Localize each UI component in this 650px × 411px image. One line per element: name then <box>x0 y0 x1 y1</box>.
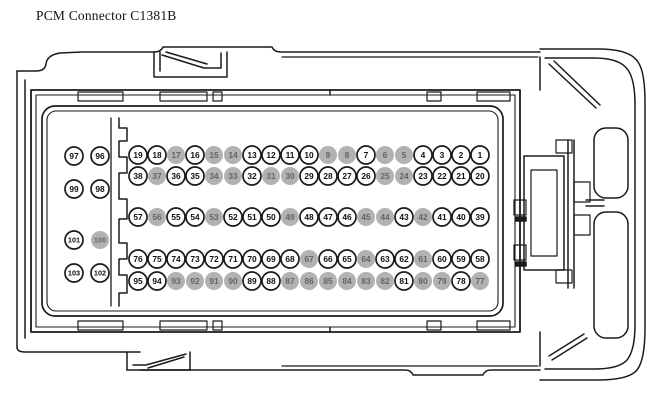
pin-71: 71 <box>224 250 242 268</box>
comb-divider <box>111 118 127 306</box>
svg-text:12: 12 <box>266 150 276 160</box>
pin-72: 72 <box>205 250 223 268</box>
pin-94: 94 <box>148 272 166 290</box>
pin-62: 62 <box>395 250 413 268</box>
pin-86: 86 <box>300 272 318 290</box>
pin-46: 46 <box>338 208 356 226</box>
pin-32: 32 <box>243 167 261 185</box>
svg-text:83: 83 <box>361 276 371 286</box>
pin-15: 15 <box>205 146 223 164</box>
pin-3: 3 <box>433 146 451 164</box>
pin-28: 28 <box>319 167 337 185</box>
pin-11: 11 <box>281 146 299 164</box>
svg-text:3: 3 <box>440 150 445 160</box>
svg-text:84: 84 <box>342 276 352 286</box>
pin-102: 102 <box>91 264 109 282</box>
pin-74: 74 <box>167 250 185 268</box>
svg-text:68: 68 <box>285 254 295 264</box>
svg-text:55: 55 <box>171 212 181 222</box>
pin-45: 45 <box>357 208 375 226</box>
svg-text:88: 88 <box>266 276 276 286</box>
pin-41: 41 <box>433 208 451 226</box>
pin-25: 25 <box>376 167 394 185</box>
pin-84: 84 <box>338 272 356 290</box>
svg-text:6: 6 <box>383 150 388 160</box>
svg-text:47: 47 <box>323 212 333 222</box>
pin-21: 21 <box>452 167 470 185</box>
pin-42: 42 <box>414 208 432 226</box>
pin-77: 77 <box>471 272 489 290</box>
svg-text:43: 43 <box>399 212 409 222</box>
pin-50: 50 <box>262 208 280 226</box>
pin-6: 6 <box>376 146 394 164</box>
pin-53: 53 <box>205 208 223 226</box>
connector-drawing: 1918171615141312111098765432138373635343… <box>0 0 650 411</box>
svg-text:38: 38 <box>133 171 143 181</box>
svg-text:1: 1 <box>478 150 483 160</box>
pin-29: 29 <box>300 167 318 185</box>
pin-85: 85 <box>319 272 337 290</box>
pin-65: 65 <box>338 250 356 268</box>
svg-text:45: 45 <box>361 212 371 222</box>
pin-13: 13 <box>243 146 261 164</box>
pin-40: 40 <box>452 208 470 226</box>
pin-27: 27 <box>338 167 356 185</box>
svg-text:41: 41 <box>437 212 447 222</box>
svg-text:13: 13 <box>247 150 257 160</box>
pin-88: 88 <box>262 272 280 290</box>
pin-55: 55 <box>167 208 185 226</box>
svg-text:29: 29 <box>304 171 314 181</box>
pin-69: 69 <box>262 250 280 268</box>
pin-78: 78 <box>452 272 470 290</box>
svg-text:48: 48 <box>304 212 314 222</box>
pin-101: 101 <box>65 231 83 249</box>
svg-text:103: 103 <box>68 269 80 278</box>
pin-1: 1 <box>471 146 489 164</box>
pin-35: 35 <box>186 167 204 185</box>
pin-51: 51 <box>243 208 261 226</box>
svg-text:101: 101 <box>68 236 80 245</box>
svg-text:9: 9 <box>326 150 331 160</box>
svg-text:65: 65 <box>342 254 352 264</box>
pin-92: 92 <box>186 272 204 290</box>
pin-76: 76 <box>129 250 147 268</box>
svg-text:22: 22 <box>437 171 447 181</box>
pin-26: 26 <box>357 167 375 185</box>
pin-10: 10 <box>300 146 318 164</box>
svg-text:50: 50 <box>266 212 276 222</box>
svg-text:7: 7 <box>364 150 369 160</box>
pin-93: 93 <box>167 272 185 290</box>
pin-31: 31 <box>262 167 280 185</box>
pin-23: 23 <box>414 167 432 185</box>
pin-61: 61 <box>414 250 432 268</box>
svg-text:4: 4 <box>421 150 426 160</box>
svg-text:80: 80 <box>418 276 428 286</box>
svg-text:56: 56 <box>152 212 162 222</box>
pin-44: 44 <box>376 208 394 226</box>
svg-text:21: 21 <box>456 171 466 181</box>
svg-text:77: 77 <box>475 276 485 286</box>
pin-49: 49 <box>281 208 299 226</box>
svg-text:87: 87 <box>285 276 295 286</box>
svg-text:49: 49 <box>285 212 295 222</box>
pin-2: 2 <box>452 146 470 164</box>
pin-grid: 1918171615141312111098765432138373635343… <box>65 146 489 290</box>
svg-text:46: 46 <box>342 212 352 222</box>
pin-87: 87 <box>281 272 299 290</box>
svg-text:14: 14 <box>228 150 238 160</box>
svg-text:73: 73 <box>190 254 200 264</box>
svg-text:95: 95 <box>133 276 143 286</box>
pin-48: 48 <box>300 208 318 226</box>
connector-diagram: 1918171615141312111098765432138373635343… <box>0 0 650 411</box>
pin-103: 103 <box>65 264 83 282</box>
pin-75: 75 <box>148 250 166 268</box>
svg-text:8: 8 <box>345 150 350 160</box>
pin-43: 43 <box>395 208 413 226</box>
pin-57: 57 <box>129 208 147 226</box>
svg-text:35: 35 <box>190 171 200 181</box>
svg-text:63: 63 <box>380 254 390 264</box>
svg-text:20: 20 <box>475 171 485 181</box>
svg-text:86: 86 <box>304 276 314 286</box>
pin-67: 67 <box>300 250 318 268</box>
svg-text:57: 57 <box>133 212 143 222</box>
svg-text:54: 54 <box>190 212 200 222</box>
svg-text:74: 74 <box>171 254 181 264</box>
pin-56: 56 <box>148 208 166 226</box>
svg-text:15: 15 <box>209 150 219 160</box>
svg-text:42: 42 <box>418 212 428 222</box>
svg-text:11: 11 <box>286 150 295 160</box>
pin-24: 24 <box>395 167 413 185</box>
svg-text:102: 102 <box>94 269 106 278</box>
pin-91: 91 <box>205 272 223 290</box>
svg-text:67: 67 <box>304 254 314 264</box>
pin-54: 54 <box>186 208 204 226</box>
svg-text:98: 98 <box>95 184 105 194</box>
svg-text:96: 96 <box>95 151 105 161</box>
pin-68: 68 <box>281 250 299 268</box>
pin-8: 8 <box>338 146 356 164</box>
svg-text:10: 10 <box>304 150 314 160</box>
svg-text:61: 61 <box>418 254 428 264</box>
svg-text:76: 76 <box>133 254 143 264</box>
pin-83: 83 <box>357 272 375 290</box>
pin-89: 89 <box>243 272 261 290</box>
svg-text:19: 19 <box>133 150 143 160</box>
pin-80: 80 <box>414 272 432 290</box>
pin-19: 19 <box>129 146 147 164</box>
svg-text:72: 72 <box>209 254 219 264</box>
pin-9: 9 <box>319 146 337 164</box>
pin-14: 14 <box>224 146 242 164</box>
pin-98: 98 <box>91 180 109 198</box>
pin-30: 30 <box>281 167 299 185</box>
pin-52: 52 <box>224 208 242 226</box>
svg-text:97: 97 <box>69 151 79 161</box>
svg-text:40: 40 <box>456 212 466 222</box>
pin-16: 16 <box>186 146 204 164</box>
pin-81: 81 <box>395 272 413 290</box>
pin-100: 100 <box>91 231 109 249</box>
svg-text:39: 39 <box>475 212 485 222</box>
svg-text:92: 92 <box>190 276 200 286</box>
pin-73: 73 <box>186 250 204 268</box>
pin-60: 60 <box>433 250 451 268</box>
svg-text:60: 60 <box>437 254 447 264</box>
pin-96: 96 <box>91 147 109 165</box>
svg-text:75: 75 <box>152 254 162 264</box>
svg-text:99: 99 <box>69 184 79 194</box>
pin-18: 18 <box>148 146 166 164</box>
pin-12: 12 <box>262 146 280 164</box>
pin-97: 97 <box>65 147 83 165</box>
pin-33: 33 <box>224 167 242 185</box>
pin-58: 58 <box>471 250 489 268</box>
pin-70: 70 <box>243 250 261 268</box>
svg-text:79: 79 <box>437 276 447 286</box>
pin-7: 7 <box>357 146 375 164</box>
svg-text:16: 16 <box>190 150 200 160</box>
pin-79: 79 <box>433 272 451 290</box>
svg-text:28: 28 <box>323 171 333 181</box>
pin-5: 5 <box>395 146 413 164</box>
pin-47: 47 <box>319 208 337 226</box>
pin-20: 20 <box>471 167 489 185</box>
svg-text:81: 81 <box>399 276 409 286</box>
top-edge <box>17 47 540 90</box>
svg-text:2: 2 <box>459 150 464 160</box>
pin-22: 22 <box>433 167 451 185</box>
svg-text:59: 59 <box>456 254 466 264</box>
pin-34: 34 <box>205 167 223 185</box>
svg-text:52: 52 <box>228 212 238 222</box>
pin-90: 90 <box>224 272 242 290</box>
pin-38: 38 <box>129 167 147 185</box>
svg-text:82: 82 <box>380 276 390 286</box>
svg-text:93: 93 <box>171 276 181 286</box>
svg-text:62: 62 <box>399 254 409 264</box>
pin-95: 95 <box>129 272 147 290</box>
left-edge <box>17 71 25 347</box>
svg-text:64: 64 <box>361 254 371 264</box>
svg-text:25: 25 <box>380 171 390 181</box>
pin-4: 4 <box>414 146 432 164</box>
svg-text:58: 58 <box>475 254 485 264</box>
svg-text:26: 26 <box>361 171 371 181</box>
svg-text:23: 23 <box>418 171 428 181</box>
svg-text:30: 30 <box>285 171 295 181</box>
svg-text:44: 44 <box>380 212 390 222</box>
svg-text:24: 24 <box>399 171 409 181</box>
svg-text:53: 53 <box>209 212 219 222</box>
svg-text:31: 31 <box>266 171 276 181</box>
latch-assembly <box>514 140 590 288</box>
svg-text:32: 32 <box>247 171 257 181</box>
svg-text:69: 69 <box>266 254 276 264</box>
wire-cover-right <box>540 49 645 380</box>
pin-17: 17 <box>167 146 185 164</box>
svg-text:91: 91 <box>209 276 219 286</box>
svg-text:37: 37 <box>152 171 162 181</box>
pin-63: 63 <box>376 250 394 268</box>
svg-text:94: 94 <box>152 276 162 286</box>
svg-text:36: 36 <box>171 171 181 181</box>
bottom-edge <box>17 332 540 375</box>
pin-99: 99 <box>65 180 83 198</box>
svg-text:18: 18 <box>152 150 162 160</box>
pin-82: 82 <box>376 272 394 290</box>
svg-text:89: 89 <box>247 276 257 286</box>
svg-text:85: 85 <box>323 276 333 286</box>
pin-36: 36 <box>167 167 185 185</box>
svg-text:27: 27 <box>342 171 352 181</box>
pin-59: 59 <box>452 250 470 268</box>
svg-text:51: 51 <box>247 212 257 222</box>
svg-text:70: 70 <box>247 254 257 264</box>
svg-text:66: 66 <box>323 254 333 264</box>
svg-text:100: 100 <box>94 236 106 245</box>
svg-text:90: 90 <box>228 276 238 286</box>
svg-text:78: 78 <box>456 276 466 286</box>
svg-text:5: 5 <box>402 150 407 160</box>
pin-64: 64 <box>357 250 375 268</box>
pin-39: 39 <box>471 208 489 226</box>
svg-text:71: 71 <box>228 254 238 264</box>
svg-text:17: 17 <box>171 150 181 160</box>
pin-66: 66 <box>319 250 337 268</box>
svg-text:34: 34 <box>209 171 219 181</box>
pin-37: 37 <box>148 167 166 185</box>
svg-text:33: 33 <box>228 171 238 181</box>
